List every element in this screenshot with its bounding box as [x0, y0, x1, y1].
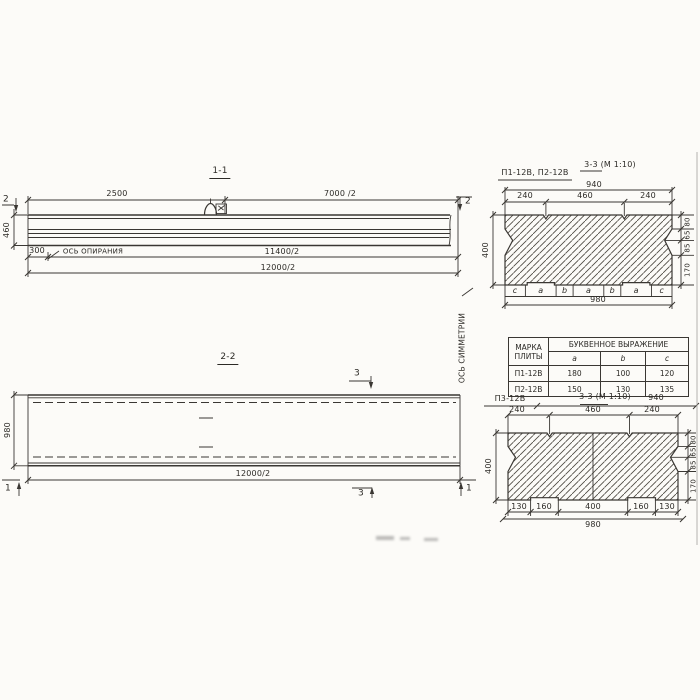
dim-170-top: 170 — [685, 263, 692, 277]
dim-300: 300 — [29, 247, 45, 255]
section-1-1-title: 1-1 — [209, 167, 230, 179]
dim-65-top: 65 — [685, 230, 692, 239]
cut-mark-1-left: 1 — [5, 485, 11, 494]
dim-65-bottom: 65 — [691, 447, 698, 456]
table-col-c: c — [646, 352, 689, 366]
letter-b-2: b — [610, 287, 615, 295]
dim-130-1: 130 — [511, 503, 527, 511]
dim-160-2: 160 — [633, 503, 649, 511]
top-section-title: 3-3 (М 1:10) — [584, 161, 636, 169]
letter-c-2: c — [659, 287, 664, 295]
dim-400-bottom: 400 — [485, 458, 493, 474]
table-header-mark-line2: ПЛИТЫ — [514, 352, 542, 361]
dim-980-bottom: 980 — [585, 521, 601, 529]
letter-a-1: a — [538, 287, 543, 295]
table-header-mark: МАРКА ПЛИТЫ — [509, 338, 549, 366]
table-header-group: БУКВЕННОЕ ВЫРАЖЕНИЕ — [549, 338, 689, 352]
cut-mark-3-top: 3 — [354, 370, 360, 379]
table-row1-a: 180 — [549, 366, 601, 382]
letter-a-3: a — [634, 287, 639, 295]
table-header-mark-line1: МАРКА — [515, 343, 542, 352]
dim-85-bottom: 85 — [691, 460, 698, 469]
letter-b-1: b — [562, 287, 567, 295]
dim-160-1: 160 — [536, 503, 552, 511]
dim-460-top: 460 — [577, 192, 593, 200]
dim-85-top: 85 — [685, 243, 692, 252]
dim-240-right-top: 240 — [640, 192, 656, 200]
dim-7000-half: 7000 /2 — [324, 190, 356, 198]
dim-940-top: 940 — [586, 181, 602, 189]
bottom-section-mark-label: П3-12В — [495, 395, 526, 403]
letter-a-2: a — [586, 287, 591, 295]
table-row1-c: 120 — [646, 366, 689, 382]
dim-2500: 2500 — [106, 190, 127, 198]
print-smudge — [376, 536, 394, 540]
dim-980-top: 980 — [590, 296, 606, 304]
table-row: П1-12В 180 100 120 — [509, 366, 689, 382]
dim-11400-half: 11400/2 — [265, 248, 300, 256]
dim-240-right-bottom: 240 — [644, 406, 660, 414]
dim-12000-half-elevation: 12000/2 — [261, 264, 296, 272]
dim-400-mid: 400 — [585, 503, 601, 511]
dim-240-left-bottom: 240 — [509, 406, 525, 414]
dim-240-left-top: 240 — [517, 192, 533, 200]
cut-mark-3-bottom: 3 — [358, 490, 364, 499]
dim-940-bottom: 940 — [648, 394, 664, 402]
slab-cross-section-top — [505, 215, 672, 285]
dim-80-bottom: 80 — [691, 435, 698, 444]
bottom-section-title: 3-3 (М 1:10) — [579, 393, 631, 401]
lifting-loop — [205, 204, 217, 216]
section-1-1-linework — [2, 196, 472, 277]
print-smudge — [424, 538, 438, 541]
section-2-2-title: 2-2 — [217, 353, 238, 365]
dim-height-460: 460 — [3, 222, 11, 238]
dim-80-top: 80 — [685, 217, 692, 226]
cut-mark-1-right: 1 — [466, 485, 472, 494]
table-row1-mark: П1-12В — [509, 366, 549, 382]
dim-460-bottom: 460 — [585, 406, 601, 414]
table-col-b: b — [601, 352, 646, 366]
letter-c-1: c — [513, 287, 518, 295]
cut-mark-2-left: 2 — [3, 196, 9, 205]
support-axis-label: ОСЬ ОПИРАНИЯ — [63, 249, 123, 256]
blueprint-page: 1-1 2500 7000 /2 2 2 460 300 ОСЬ ОПИРАНИ… — [0, 0, 700, 700]
dim-170-bottom: 170 — [691, 479, 698, 493]
table-col-a: a — [549, 352, 601, 366]
dim-12000-half-plan: 12000/2 — [236, 470, 271, 478]
section-2-2-linework — [2, 288, 476, 498]
letter-values-table: МАРКА ПЛИТЫ БУКВЕННОЕ ВЫРАЖЕНИЕ a b c П1… — [508, 337, 689, 397]
table-row1-b: 100 — [601, 366, 646, 382]
top-section-mark-label: П1-12В, П2-12В — [501, 169, 568, 177]
symmetry-axis-label: ОСЬ СИММЕТРИИ — [458, 313, 466, 383]
dim-400-top: 400 — [482, 242, 490, 258]
dim-width-980: 980 — [4, 422, 12, 438]
print-smudge — [400, 537, 410, 540]
dim-130-2: 130 — [659, 503, 675, 511]
cut-mark-2-right: 2 — [465, 198, 471, 207]
